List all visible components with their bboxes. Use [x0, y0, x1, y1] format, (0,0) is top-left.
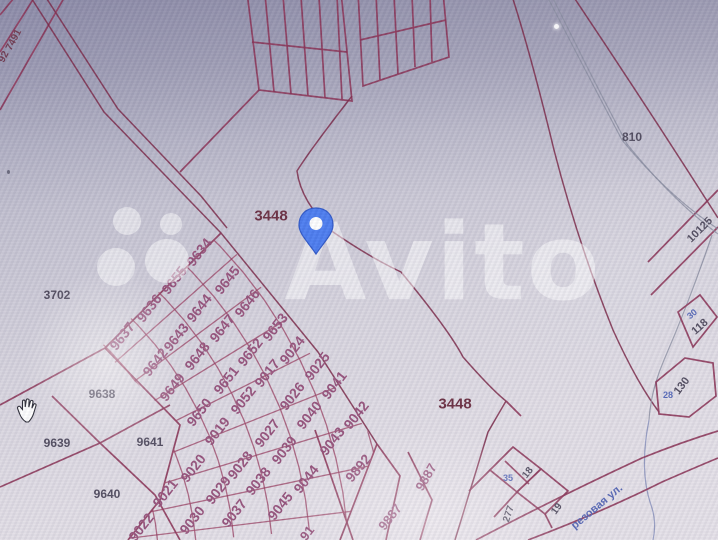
parcel-number-label: 9644 [183, 291, 215, 326]
parcel-number-label: 35 [503, 473, 513, 483]
parcel-number-label: 9637 [106, 319, 138, 354]
parcel-number-label: 9636 [133, 291, 165, 326]
dust-speck [554, 24, 559, 29]
parcel-number-label: 9639 [44, 436, 71, 450]
parcel-number-label: 7491 [4, 27, 24, 52]
parcel-number-label: 9021 [149, 476, 181, 511]
dust-speck [7, 170, 10, 174]
parcel-number-label: 9887 [375, 501, 405, 533]
avito-logo-circle [97, 248, 135, 286]
parcel-number-label: 3448 [254, 208, 287, 225]
parcel-number-label: 810 [622, 130, 642, 144]
parcel-number-label: 9030 [176, 503, 208, 538]
parcel-number-label: 9646 [231, 286, 263, 321]
parcel-number-label: 9887 [412, 461, 439, 494]
avito-logo-circle [145, 239, 189, 283]
hand-cursor-icon [17, 399, 36, 422]
parcel-number-label: 9042 [340, 398, 372, 433]
parcel-number-label: 130 [672, 375, 693, 397]
avito-logo-circle [113, 207, 141, 235]
parcel-number-label: 19 [549, 501, 565, 517]
parcel-number-label: 3448 [438, 396, 471, 413]
cadastral-map-screenshot: 7491923702344834488101012596389639964096… [0, 0, 718, 540]
parcel-number-label: 9052 [227, 383, 259, 418]
parcel-number-label: 9640 [94, 487, 121, 501]
parcel-number-label: 9638 [89, 387, 116, 401]
cadastral-map: 7491923702344834488101012596389639964096… [0, 0, 718, 540]
parcel-number-label: 9017 [251, 356, 283, 391]
parcel-number-label: 9647 [206, 311, 238, 346]
parcel-number-label: 9037 [218, 496, 250, 531]
parcel-number-label: 9641 [137, 435, 164, 449]
avito-logo-circle [160, 213, 182, 235]
parcel-number-label: 9645 [211, 263, 243, 298]
bottom-right-parcels [469, 447, 568, 528]
parcel-number-label: 9651 [210, 363, 242, 398]
parcel-number-label: 9650 [183, 395, 215, 430]
parcel-number-label: 3702 [44, 288, 71, 302]
parcel-number-label: 9024 [276, 333, 308, 368]
parcel-number-label: 9649 [156, 370, 188, 405]
parcel-number-label: 91 [297, 523, 318, 540]
parcel-number-label: 30 [685, 307, 699, 321]
avito-watermark: Avito [97, 201, 602, 324]
parcel-number-label: 9041 [318, 368, 350, 403]
parcel-number-label: 9044 [290, 462, 322, 497]
parcel-number-label: 9892 [342, 451, 374, 485]
parcel-number-label: 9652 [234, 335, 266, 370]
parcel-number-label: 28 [663, 390, 673, 400]
parcel-number-label: 9020 [177, 451, 209, 486]
parcel-number-label: 9029 [202, 473, 234, 508]
